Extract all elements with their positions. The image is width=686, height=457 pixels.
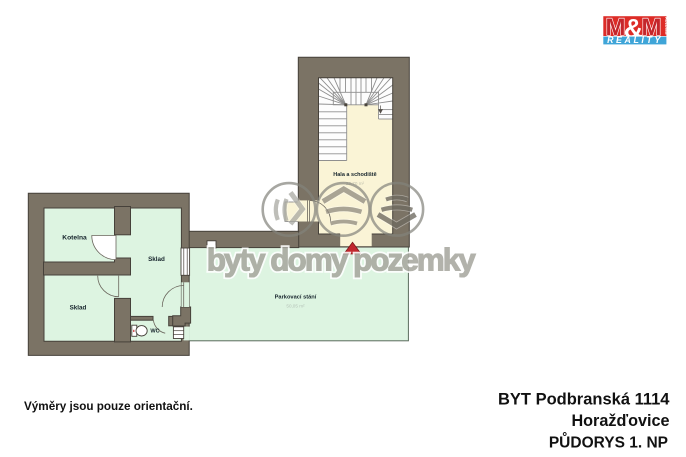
svg-text:WC: WC <box>150 329 159 335</box>
svg-text:Sklad: Sklad <box>70 305 87 312</box>
svg-text:byty domy pozemky: byty domy pozemky <box>207 241 477 277</box>
svg-text:Hala a schodiště: Hala a schodiště <box>333 172 376 178</box>
svg-text:50,05 m²: 50,05 m² <box>286 304 305 309</box>
svg-text:PŮDORYS 1. NP: PŮDORYS 1. NP <box>549 433 668 452</box>
svg-text:REALITY: REALITY <box>607 35 663 45</box>
svg-text:HOLDING: HOLDING <box>664 17 668 35</box>
svg-text:Kotelna: Kotelna <box>62 235 87 242</box>
svg-text:Sklad: Sklad <box>148 256 165 263</box>
svg-text:Parkovací stání: Parkovací stání <box>275 295 317 301</box>
svg-text:Horažďovice: Horažďovice <box>571 412 669 430</box>
svg-text:Výměry jsou pouze orientační.: Výměry jsou pouze orientační. <box>24 400 193 413</box>
svg-text:BYT Podbranská 1114: BYT Podbranská 1114 <box>498 391 670 409</box>
